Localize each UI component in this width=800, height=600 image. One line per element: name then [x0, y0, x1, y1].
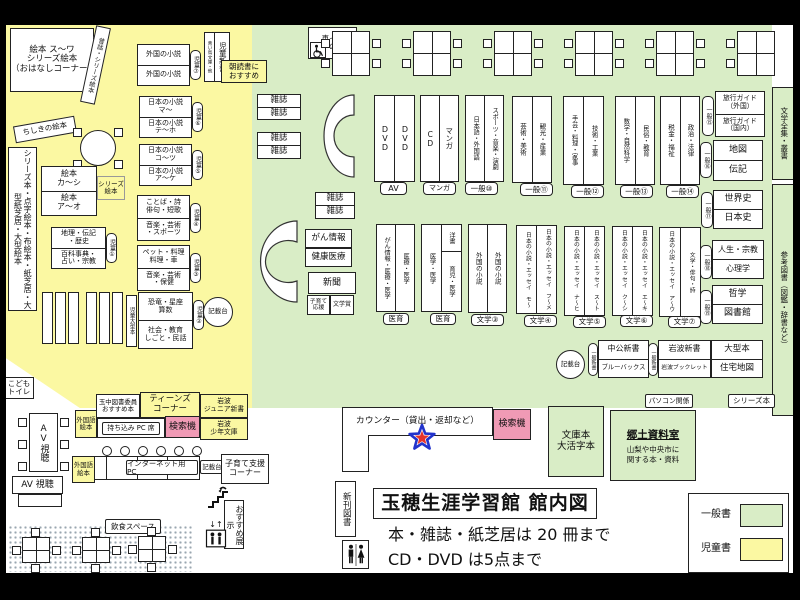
recommended-display-shelf: おすすめ展示 [224, 500, 244, 549]
general-shelf-11: 芸術・美術観光・産業 [512, 96, 552, 183]
chair [18, 440, 27, 449]
chair [12, 546, 21, 555]
children-shelf-7: 外国の小説外国の小説 [137, 44, 190, 86]
restroom-icon [342, 540, 369, 569]
shinsho-pill-2: 一般新書 [648, 343, 658, 376]
chair [372, 59, 381, 68]
literature-shelf-4-tag: 文学④ [524, 315, 557, 327]
chair [114, 128, 123, 137]
stool [156, 446, 166, 456]
pc-related-label: パソコン関係 [645, 394, 693, 408]
map-biography-shelf: 地図伝記 [713, 140, 763, 181]
general-shelf-12: 手芸・料理・家事技術・工業 [563, 96, 604, 185]
chair [534, 59, 543, 68]
chair [31, 528, 40, 537]
chair [402, 59, 411, 68]
health-medical-box: 健康医療 [305, 248, 352, 267]
medical-shelf-a: がん情報・医療・医学医療・医学 [376, 224, 415, 312]
literature-shelf-4: 日本の小説・エッセイ モ～日本の小説・エッセイ フ～メ [516, 225, 557, 314]
chair [147, 527, 156, 536]
left-letterbox [0, 0, 6, 600]
av-viewing-table: AV視聴 [29, 413, 58, 472]
low-shelf [55, 292, 66, 344]
literature-shelf-7-tag: 文学⑦ [668, 316, 701, 328]
children-shelf-3: ペット・料理 料理・車音楽・芸術 ・保健 [137, 245, 190, 291]
chair [564, 59, 573, 68]
stool [192, 446, 202, 456]
curved-bench [321, 93, 359, 179]
general-shelf-13: 数学・自然科学民俗・教育 [615, 96, 655, 185]
travel-guide-shelf: 旅行ガイド （外国）旅行ガイド （国内） [715, 91, 765, 137]
chair [60, 440, 69, 449]
general-17-pill: 一般⑰ [701, 192, 713, 228]
chair [696, 59, 705, 68]
byod-pc-seat: 持ち込み PC 席 [97, 418, 165, 438]
picturebook-ka-shi: 絵本 カ～シ [42, 167, 96, 191]
general-shelf-14: 税金・福祉政治・法律 [660, 96, 700, 185]
chair [402, 39, 411, 48]
chair [726, 39, 735, 48]
literature-complete-works-strip: 文学全集・叢書 [772, 87, 795, 180]
chair [726, 59, 735, 68]
parenting-support-corner: 子育て支援 コーナー [221, 454, 269, 484]
reading-table [575, 31, 613, 76]
general-shelf-14-tag: 一般⑭ [666, 185, 699, 198]
children-shelf-2: 恐竜・星座 算数社会・教育 しごと・民話 [138, 292, 193, 349]
chair [453, 59, 462, 68]
library-floor-map: 絵本 ス～ワ シリーズ絵本 （おはなしコーナー） 昔話・シリーズ絵本 ちしきの絵… [0, 0, 800, 600]
low-shelf [42, 292, 53, 344]
children-shelf-5-pill: 児童⑤ [192, 150, 203, 180]
search-terminal-teens: 検索機 [165, 416, 200, 438]
iwanami-shonen-bunko: 岩波 少年文庫 [200, 418, 248, 440]
newspaper-box: 新聞 [308, 272, 356, 294]
foreign-picturebooks-teens: 外国語 絵本 [75, 410, 97, 438]
storytime-corner: 絵本 ス～ワ シリーズ絵本 （おはなしコーナー） [10, 28, 94, 92]
children-shelf-6-pill: 児童⑥ [192, 102, 203, 132]
chair [696, 39, 705, 48]
stool [138, 446, 148, 456]
children-shelf-7-pill: 児童⑦ [190, 50, 201, 80]
picturebook-shelf: 絵本 カ～シ 絵本 ア～オ [41, 166, 97, 216]
shinsho-pill-1: 一般新書 [588, 343, 598, 376]
large-books-shelf: 大型本住宅地図 [711, 340, 763, 378]
children-shelf-4: ことば・詩 俳句・短歌音楽・芸術 ・スポーツ [137, 195, 190, 241]
chair [147, 563, 156, 572]
curved-bench [257, 219, 302, 304]
local-history-room-title: 郷土資料室 [627, 427, 680, 442]
internet-pc-label: インターネット用 PC [126, 460, 198, 475]
history-shelf: 世界史日本史 [713, 190, 763, 229]
children-shelf-4-pill: 児童④ [190, 203, 201, 233]
parenting-support-books-box: 子育て 応援 [307, 295, 330, 315]
reading-table [332, 31, 370, 76]
chair [564, 39, 573, 48]
writing-stand-general: 記載台 [556, 350, 585, 379]
chair [73, 128, 82, 137]
reading-table [737, 31, 775, 76]
medical-shelf-b-tag: 医育 [430, 313, 456, 325]
low-shelf [68, 292, 79, 344]
chair [114, 160, 123, 169]
magazine-rack: 雑誌雑誌 [257, 94, 301, 120]
reference-books-strip: 参考図書（図鑑・辞書など） [772, 184, 795, 416]
literature-shelf-5-tag: 文学⑤ [573, 316, 606, 328]
iwanami-junior-shinsho: 岩波 ジュニア新書 [200, 394, 248, 418]
low-shelf [99, 292, 110, 344]
general-shelf-11-tag: 一般⑪ [520, 183, 553, 196]
low-shelf [112, 292, 123, 344]
literature-shelf-3-tag: 文学③ [471, 314, 504, 326]
general-18-pill: 一般⑱ [700, 245, 712, 279]
chair [18, 462, 27, 471]
manga-shelf-tag: マンガ [423, 182, 456, 195]
chair [91, 528, 100, 537]
chair [60, 462, 69, 471]
top-letterbox [0, 0, 800, 25]
magazine-rack: 雑誌雑誌 [257, 132, 301, 159]
new-books-shelf: 新刊図書 [335, 481, 356, 537]
elevator-arrows: ↓↑ [205, 521, 227, 529]
picturebook-a-o: 絵本 ア～オ [42, 191, 96, 216]
bottom-letterbox [0, 573, 800, 600]
stool [102, 446, 112, 456]
loan-limit-note-media: CD・DVD は5点まで [388, 546, 628, 568]
children-shelf-1-pill: 児童① [106, 233, 117, 263]
chair [321, 59, 330, 68]
literary-prize-box: 文学賞 [330, 295, 354, 315]
reading-table [494, 31, 532, 76]
chair [91, 564, 100, 573]
general-shelf-12-tag: 一般⑫ [571, 185, 604, 198]
legend-general-label: 一般書 [697, 506, 735, 524]
children-shelf-5: 日本の小説 コ～ツ日本の小説 ア～ケ [139, 144, 192, 186]
chair [615, 59, 624, 68]
chair [372, 39, 381, 48]
map-title: 玉穂生涯学習館 館内図 [373, 488, 597, 519]
dvd-shelf: DVDDVD [374, 95, 415, 182]
legend-general-swatch [740, 504, 783, 527]
stool [120, 446, 130, 456]
paperback-large-print-room: 文庫本 大活字本 [548, 406, 604, 477]
morning-reading-recommendation: 朝読書に おすすめ [221, 60, 267, 83]
av-viewing-booth: AV 視聴 [12, 476, 63, 494]
cancer-info-box: がん情報 [305, 229, 352, 248]
chair [112, 546, 121, 555]
reading-table [413, 31, 451, 76]
chair [18, 418, 27, 427]
general-shelf-13-tag: 一般⑬ [620, 185, 653, 198]
chair [534, 39, 543, 48]
religion-psychology-shelf: 人生・宗教心理学 [712, 240, 764, 279]
series-books-label: シリーズ本 [728, 394, 775, 408]
chair [321, 39, 330, 48]
children-shelf-1: 地理・伝記 ・歴史百科事典・ 占い・宗教 [51, 227, 106, 269]
cd-manga-shelf: CDマンガ [420, 95, 459, 182]
chair [453, 39, 462, 48]
children-large-books-label: 児童大型本 [126, 295, 137, 347]
chair [483, 39, 492, 48]
literature-shelf-6: 日本の小説・エッセイ ク～シ日本の小説・エッセイ エ～キ [612, 226, 653, 316]
dvd-shelf-tag: AV [380, 182, 407, 195]
search-terminal-counter: 検索機 [493, 409, 531, 440]
kodomo-toilet: こども トイレ [4, 377, 34, 399]
low-shelf [86, 292, 97, 344]
legend: 一般書 児童書 [688, 493, 789, 573]
general-19-pill: 一般⑲ [700, 290, 712, 324]
medical-shelf-b: 医学・医学 洋書育児・医学 [421, 224, 462, 312]
literature-shelf-7: 日本の小説・エッセイ ア～ウ文学・俳句・詩 [659, 227, 701, 317]
chair [60, 418, 69, 427]
student-recommendation-box: 玉中図書委員 おすすめ本 [96, 394, 140, 418]
loan-limit-note-books: 本・雑誌・紙芝居は 20 冊まで [388, 521, 658, 543]
legend-children-label: 児童書 [697, 540, 735, 558]
series-braille-kamishibai-shelf: シリーズ本・点字絵本・布絵本・紙芝居・大型紙芝居・大型絵本 [8, 147, 37, 311]
chair [615, 39, 624, 48]
legend-children-swatch [740, 538, 783, 561]
chair [168, 545, 177, 554]
reading-table [656, 31, 694, 76]
chair [52, 546, 61, 555]
chair [645, 39, 654, 48]
philosophy-shelf: 哲学図書館 [712, 285, 763, 324]
general-16-pill: 一般⑯ [700, 142, 712, 178]
chair [128, 545, 137, 554]
general-15-pill: 一般⑮ [702, 96, 714, 136]
chair [483, 59, 492, 68]
stool [174, 446, 184, 456]
children-shelf-6: 日本の小説 マ～日本の小説 テ～ホ [139, 96, 192, 138]
elevator-icon: ↓↑ [205, 521, 227, 549]
local-history-room-sub: 山梨や中央市に 関する本・資料 [627, 445, 680, 464]
general-shelf-10-tag: 一般⑩ [465, 182, 498, 195]
location-star-icon [407, 423, 437, 453]
service-counter-return [342, 435, 369, 472]
literature-shelf-6-tag: 文学⑥ [620, 315, 653, 327]
children-shelf-3-pill: 児童③ [190, 253, 201, 283]
aoitori-label: 青い鳥文庫・他 [205, 33, 215, 81]
byod-pc-seat-label: 持ち込み PC 席 [102, 422, 160, 435]
local-history-room: 郷土資料室 山梨や中央市に 関する本・資料 [610, 410, 696, 481]
right-letterbox [793, 0, 800, 600]
dining-table [138, 536, 166, 562]
dining-table [22, 537, 50, 563]
literature-shelf-5: 日本の小説・エッセイ ナ～ヒ日本の小説・エッセイ ス～ト [564, 226, 605, 316]
chair [645, 59, 654, 68]
chair [72, 546, 81, 555]
foreign-picturebooks-internet: 外国語 絵本 [72, 456, 95, 483]
chair [31, 564, 40, 573]
writing-stand-children: 記載台 [203, 297, 233, 327]
teens-corner: ティーンズ コーナー [140, 392, 200, 418]
round-table [80, 130, 116, 166]
medical-shelf-a-tag: 医育 [383, 313, 409, 325]
dining-table [82, 537, 110, 563]
av-booth-table [18, 494, 62, 507]
literature-shelf-3: 外国の小説外国の小説 [468, 224, 507, 313]
iwanami-shinsho-shelf: 岩波新書岩波ブックレット [658, 340, 711, 378]
general-shelf-10: 日本語・外国語スポーツ・音楽・演劇 [465, 95, 504, 182]
chuko-shinsho-shelf: 中公新書ブルーバックス [598, 340, 649, 378]
series-picturebook-label: シリーズ 絵本 [97, 176, 125, 200]
magazine-rack: 雑誌雑誌 [315, 192, 355, 219]
